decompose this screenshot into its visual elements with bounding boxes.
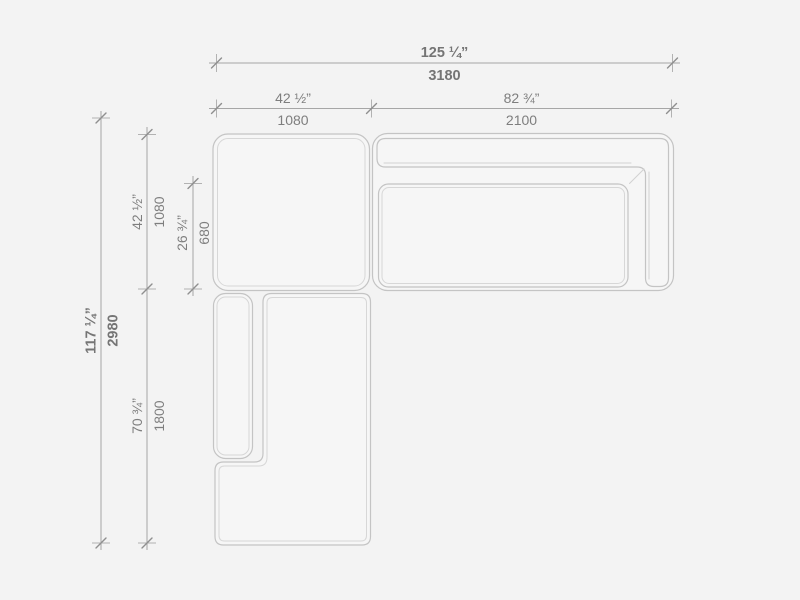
furniture-plan: [213, 134, 674, 546]
dim-module-widths: 42 ½” 1080 82 ¾” 2100: [209, 90, 679, 128]
dim-label-top-depth-mm: 1080: [151, 196, 167, 227]
dim-label-seat-depth-in: 26 ¾”: [174, 215, 190, 251]
dim-overall-width: 125 ¼” 3180: [209, 45, 680, 84]
dim-label-overall-depth-mm: 2980: [106, 314, 122, 346]
dim-label-seat-depth-mm: 680: [196, 221, 212, 245]
dim-label-right-width-in: 82 ¾”: [504, 90, 540, 106]
dim-label-overall-width-in: 125 ¼”: [421, 45, 469, 61]
dim-label-left-width-in: 42 ½”: [275, 90, 311, 106]
dim-label-top-depth-in: 42 ½”: [129, 194, 145, 230]
corner-module-outline: [213, 134, 370, 291]
right-sofa-seat-outline: [379, 184, 629, 287]
dim-label-right-width-mm: 2100: [506, 112, 537, 128]
chaise-armrest-outline: [214, 294, 253, 459]
dim-depth-segments: 42 ½” 1080 70 ¾” 1800: [129, 127, 167, 550]
dim-overall-depth: 117 ¼” 2980: [84, 111, 122, 550]
sofa-dimension-drawing: 125 ¼” 3180 42 ½” 1080 82 ¾” 2100 117 ¼”…: [0, 0, 800, 600]
dim-label-overall-depth-in: 117 ¼”: [84, 307, 100, 354]
dim-seat-depth: 26 ¾” 680: [174, 176, 212, 296]
dim-label-overall-width-mm: 3180: [428, 68, 460, 84]
drawing-canvas: 125 ¼” 3180 42 ½” 1080 82 ¾” 2100 117 ¼”…: [0, 0, 800, 600]
dim-label-chaise-length-mm: 1800: [151, 400, 167, 431]
dim-label-left-width-mm: 1080: [277, 112, 308, 128]
dim-label-chaise-length-in: 70 ¾”: [129, 398, 145, 434]
